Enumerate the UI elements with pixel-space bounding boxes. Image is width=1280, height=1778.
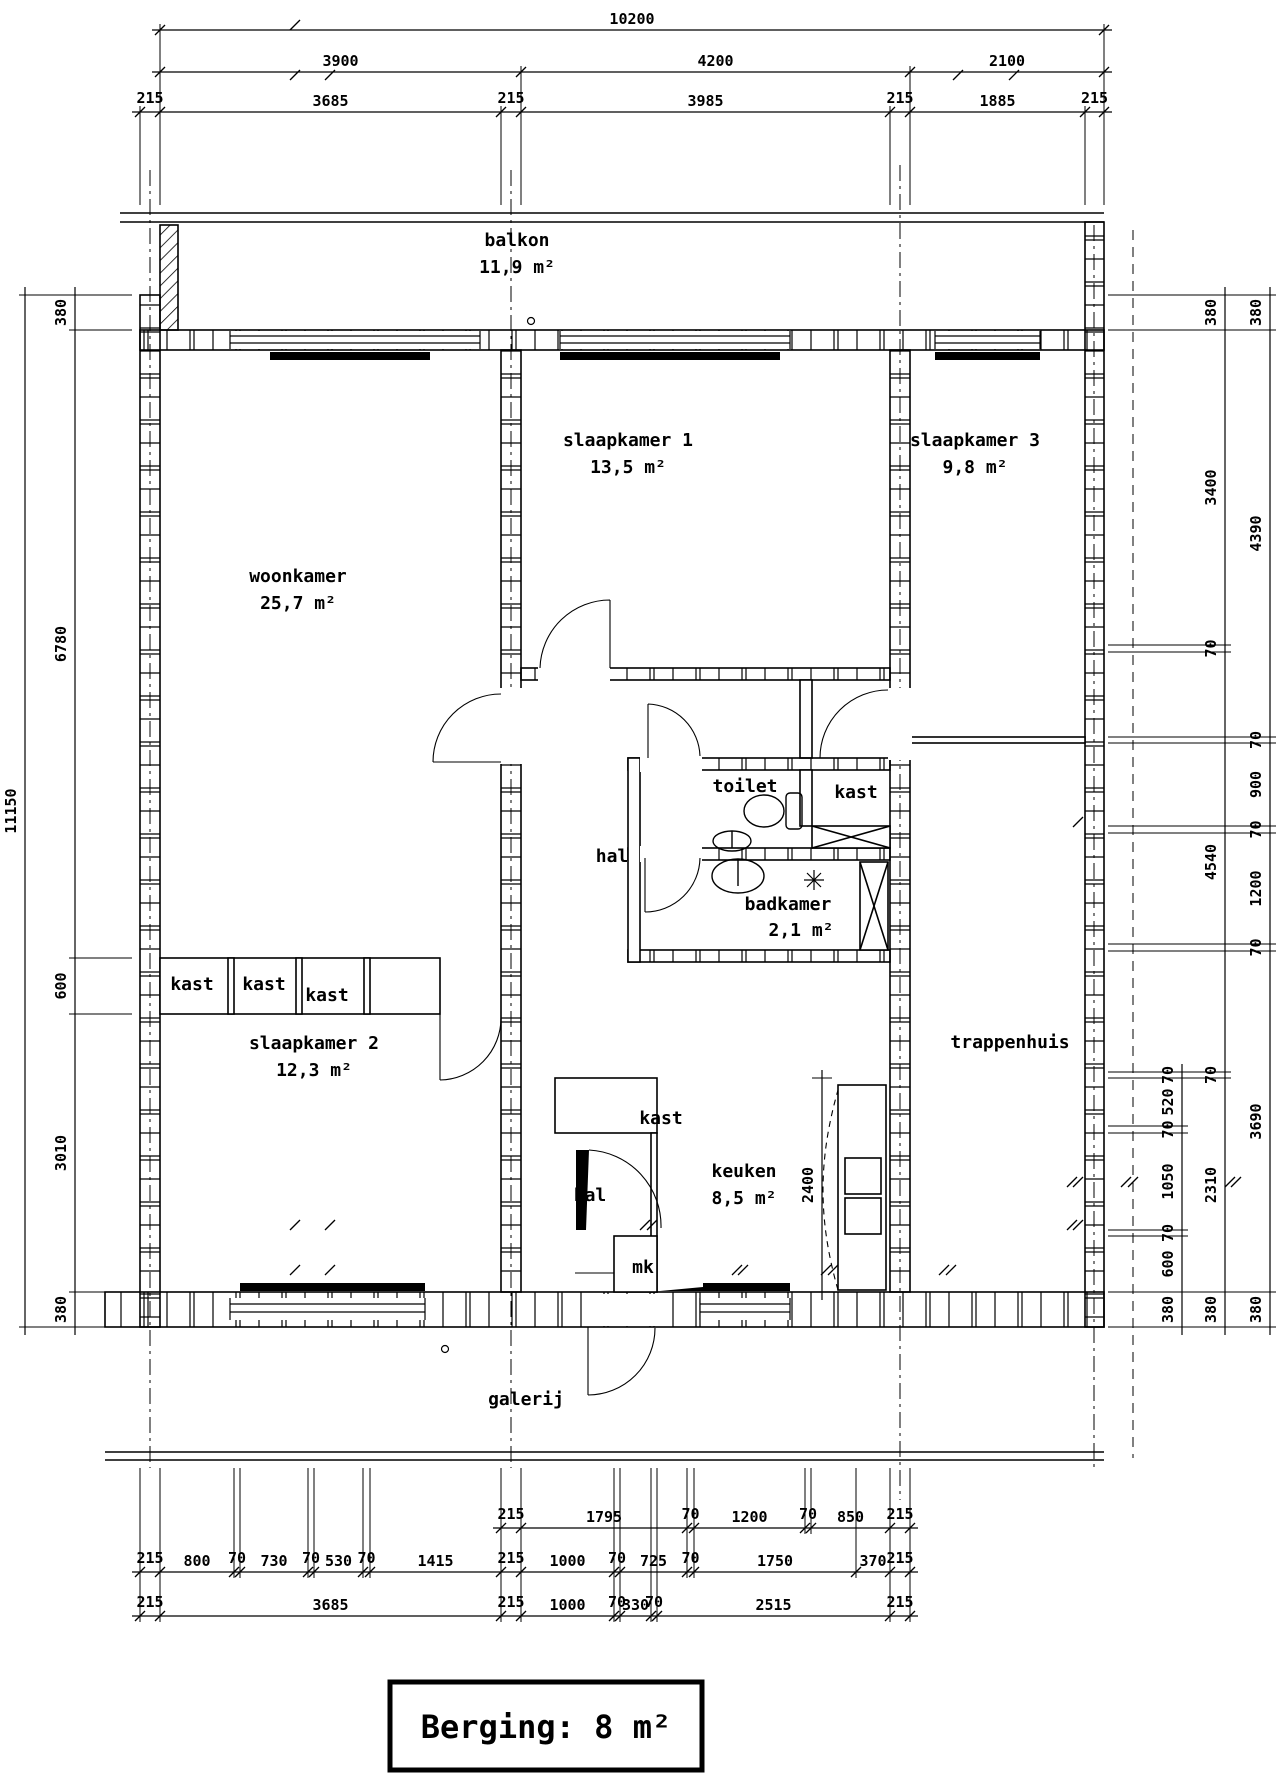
- dim-label-right-outer: 3690: [1247, 1103, 1265, 1139]
- dim-label-bottom-1: 70: [681, 1505, 699, 1523]
- room-label-keuken: keuken: [711, 1161, 776, 1182]
- dim-label-bottom-1: 215: [886, 1505, 913, 1523]
- dim-label-left-overall: 11150: [2, 788, 20, 833]
- dim-label-bottom-1: 1795: [586, 1508, 622, 1526]
- dim-label-bottom-2: 800: [183, 1552, 210, 1570]
- dim-label-right-outer: 70: [1247, 731, 1265, 749]
- dim-label-right-mid: 70: [1202, 1066, 1220, 1084]
- dim-label-right-mid: 2310: [1202, 1167, 1220, 1203]
- dim-label-left-detail: 6780: [52, 626, 70, 662]
- dim-label-bottom-3: 3685: [312, 1596, 348, 1614]
- dim-label-top-overall: 10200: [609, 10, 654, 28]
- dim-label-right-outer: 380: [1247, 299, 1265, 326]
- room-label-galerij: galerij: [488, 1389, 564, 1410]
- dim-label-bottom-2: 215: [497, 1549, 524, 1567]
- dim-label-bottom-2: 1750: [757, 1552, 793, 1570]
- dim-label-right-inner: 380: [1159, 1296, 1177, 1323]
- dim-label-bottom-1: 1200: [731, 1508, 767, 1526]
- dim-label-bottom-2: 730: [260, 1552, 287, 1570]
- dim-label-top-detail: 1885: [979, 92, 1015, 110]
- dim-label-bottom-2: 70: [608, 1549, 626, 1567]
- room-label-kast: kast: [834, 782, 877, 803]
- dim-label-right-mid: 70: [1202, 639, 1220, 657]
- room-area-slaapkamer-3: 9,8 m²: [942, 457, 1007, 478]
- dim-label-bottom-1: 70: [799, 1505, 817, 1523]
- dim-label-top-detail: 215: [1081, 89, 1108, 107]
- room-label-woonkamer: woonkamer: [249, 566, 347, 587]
- dim-label-right-outer: 70: [1247, 820, 1265, 838]
- room-label-2-1-m²: 2,1 m²: [768, 920, 833, 941]
- room-label-kast: kast: [170, 974, 213, 995]
- dim-label-bottom-3: 215: [136, 1593, 163, 1611]
- dim-label-bottom-3: 1000: [549, 1596, 585, 1614]
- room-label-slaapkamer-1: slaapkamer 1: [563, 430, 693, 451]
- dim-label-bottom-2: 215: [136, 1549, 163, 1567]
- dim-label-bottom-2: 70: [357, 1549, 375, 1567]
- room-label-badkamer: badkamer: [745, 894, 832, 915]
- dim-label-right-outer: 70: [1247, 938, 1265, 956]
- dim-label-top-detail: 215: [886, 89, 913, 107]
- dim-label-bottom-2: 70: [228, 1549, 246, 1567]
- balcony-door-handle: [528, 318, 535, 325]
- dim-label-top-detail: 3985: [687, 92, 723, 110]
- room-label-slaapkamer-3: slaapkamer 3: [910, 430, 1040, 451]
- dim-label-top-bays: 3900: [322, 52, 358, 70]
- dim-label-top-detail: 3685: [312, 92, 348, 110]
- dim-label-bottom-2: 1000: [549, 1552, 585, 1570]
- dim-label-right-mid: 4540: [1202, 844, 1220, 880]
- room-label-mk: mk: [632, 1257, 654, 1278]
- room-label-hal: hal: [574, 1185, 607, 1206]
- dim-label-keuken-depth: 2400: [799, 1167, 817, 1203]
- floor-plan-svg: 1020039004200210021536852153985215188521…: [0, 0, 1280, 1774]
- room-label-kast: kast: [242, 974, 285, 995]
- dim-label-left-detail: 600: [52, 972, 70, 999]
- dim-label-right-inner: 70: [1159, 1120, 1177, 1138]
- dim-label-bottom-2: 215: [886, 1549, 913, 1567]
- dim-label-right-mid: 3400: [1202, 469, 1220, 505]
- dim-label-bottom-3: 2515: [755, 1596, 791, 1614]
- dim-label-bottom-2: 370: [859, 1552, 886, 1570]
- dim-label-top-detail: 215: [136, 89, 163, 107]
- dim-label-bottom-3: 215: [886, 1593, 913, 1611]
- dim-label-right-mid: 380: [1202, 1296, 1220, 1323]
- dim-label-right-inner: 1050: [1159, 1163, 1177, 1199]
- dim-label-bottom-2: 530: [325, 1552, 352, 1570]
- dim-label-bottom-1: 215: [497, 1505, 524, 1523]
- dim-label-right-inner: 70: [1159, 1224, 1177, 1242]
- dim-label-bottom-2: 725: [640, 1552, 667, 1570]
- floor-plan-page: 1020039004200210021536852153985215188521…: [0, 0, 1280, 1774]
- dim-label-bottom-1: 850: [837, 1508, 864, 1526]
- dim-label-right-inner: 600: [1159, 1250, 1177, 1277]
- room-label-balkon: balkon: [484, 230, 549, 251]
- room-area-woonkamer: 25,7 m²: [260, 593, 336, 614]
- toilet-bowl: [744, 795, 784, 827]
- room-label-kast: kast: [639, 1108, 682, 1129]
- dim-label-bottom-2: 70: [681, 1549, 699, 1567]
- dim-label-top-bays: 2100: [989, 52, 1025, 70]
- room-label-kast: kast: [305, 985, 348, 1006]
- dim-label-right-inner: 520: [1159, 1088, 1177, 1115]
- room-area-slaapkamer-2: 12,3 m²: [276, 1060, 352, 1081]
- dim-label-top-detail: 215: [497, 89, 524, 107]
- dim-label-left-detail: 3010: [52, 1135, 70, 1171]
- dim-label-right-mid: 380: [1202, 299, 1220, 326]
- dim-label-bottom-3: 215: [497, 1593, 524, 1611]
- room-label-slaapkamer-2: slaapkamer 2: [249, 1033, 379, 1054]
- dim-label-left-detail: 380: [52, 299, 70, 326]
- dim-label-left-detail: 380: [52, 1296, 70, 1323]
- dim-label-right-outer: 380: [1247, 1296, 1265, 1323]
- dim-label-bottom-2: 1415: [417, 1552, 453, 1570]
- dim-label-bottom-2: 70: [302, 1549, 320, 1567]
- room-label-toilet: toilet: [712, 776, 777, 797]
- room-area-balkon: 11,9 m²: [479, 257, 555, 278]
- dim-label-right-outer: 900: [1247, 771, 1265, 798]
- room-area-keuken: 8,5 m²: [711, 1188, 776, 1209]
- room-label-trappenhuis: trappenhuis: [950, 1032, 1069, 1053]
- dim-label-right-inner: 70: [1159, 1066, 1177, 1084]
- dim-label-right-outer: 4390: [1247, 515, 1265, 551]
- drain-symbol: [804, 870, 824, 890]
- dim-label-top-bays: 4200: [697, 52, 733, 70]
- room-area-slaapkamer-1: 13,5 m²: [590, 457, 666, 478]
- room-label-hal: hal: [596, 846, 629, 867]
- dim-label-right-outer: 1200: [1247, 870, 1265, 906]
- dim-label-bottom-3: 70: [645, 1593, 663, 1611]
- gallery-door-handle: [442, 1346, 449, 1353]
